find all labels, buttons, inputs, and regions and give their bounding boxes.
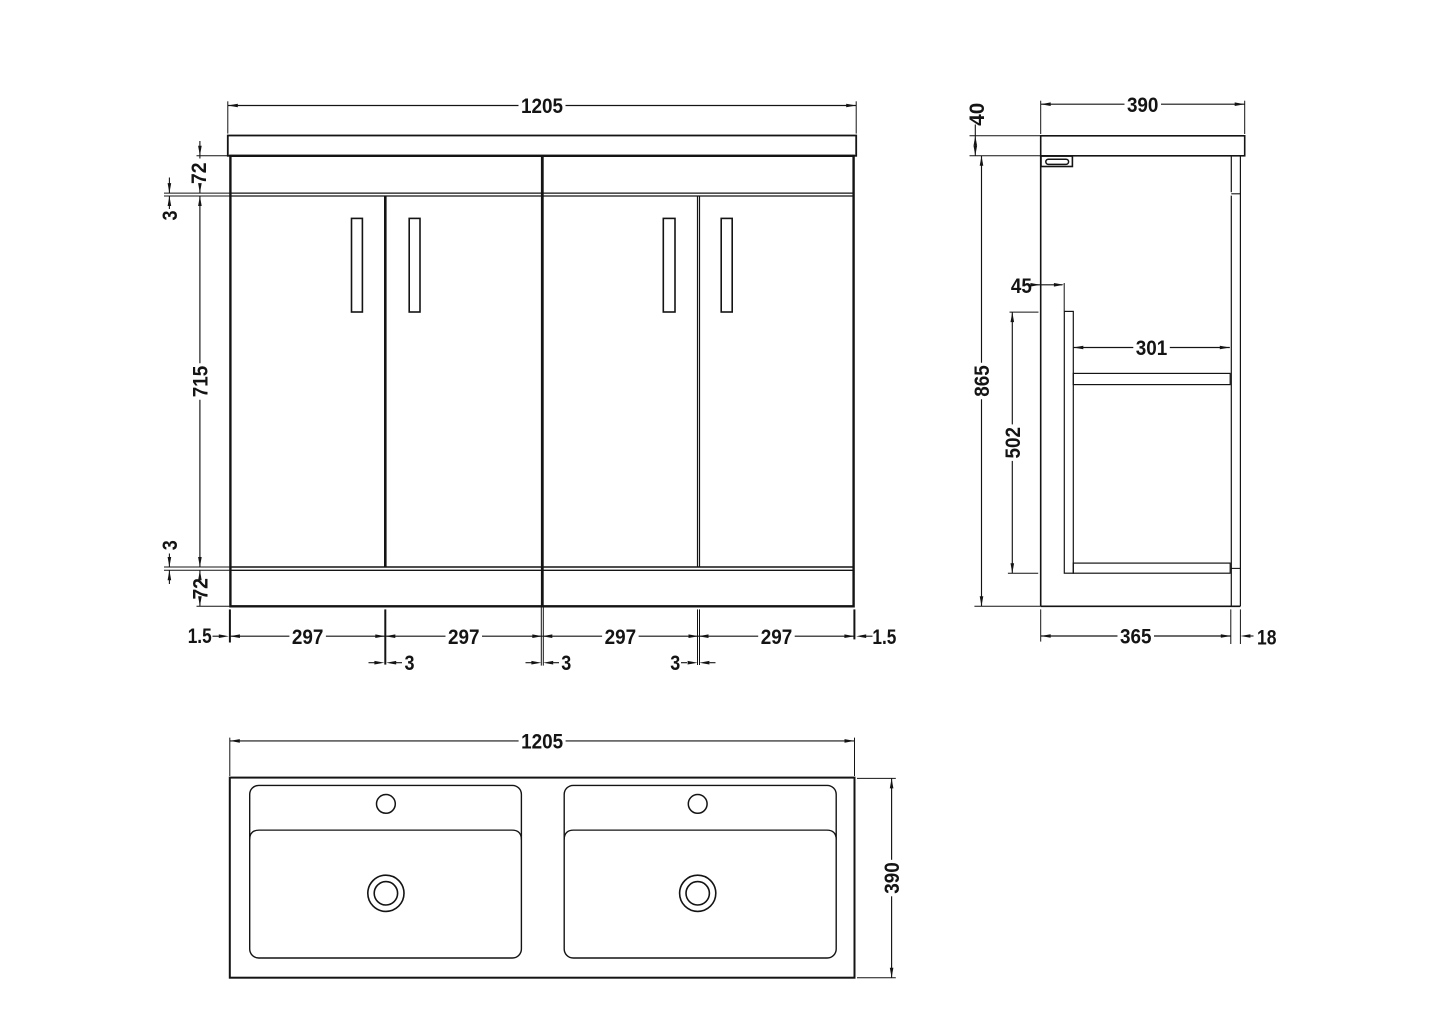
svg-text:72: 72 <box>188 162 211 184</box>
svg-text:18: 18 <box>1257 627 1277 650</box>
svg-text:1.5: 1.5 <box>872 626 896 649</box>
svg-text:3: 3 <box>159 210 182 220</box>
svg-text:3: 3 <box>405 652 415 675</box>
svg-text:45: 45 <box>1011 275 1032 298</box>
svg-text:390: 390 <box>881 862 904 894</box>
svg-text:502: 502 <box>1002 427 1025 459</box>
svg-text:3: 3 <box>159 540 182 550</box>
svg-text:3: 3 <box>561 652 571 675</box>
svg-text:3: 3 <box>670 652 680 675</box>
svg-text:1.5: 1.5 <box>188 625 212 648</box>
svg-text:297: 297 <box>605 626 637 649</box>
svg-text:301: 301 <box>1136 337 1168 360</box>
svg-text:865: 865 <box>971 365 994 397</box>
svg-text:715: 715 <box>190 366 213 398</box>
svg-text:1205: 1205 <box>521 95 563 118</box>
svg-text:297: 297 <box>448 626 480 649</box>
svg-text:390: 390 <box>1127 94 1159 117</box>
svg-text:297: 297 <box>292 626 324 649</box>
svg-text:297: 297 <box>761 626 793 649</box>
svg-text:1205: 1205 <box>521 731 563 754</box>
svg-text:40: 40 <box>966 103 989 126</box>
svg-text:365: 365 <box>1120 626 1152 649</box>
